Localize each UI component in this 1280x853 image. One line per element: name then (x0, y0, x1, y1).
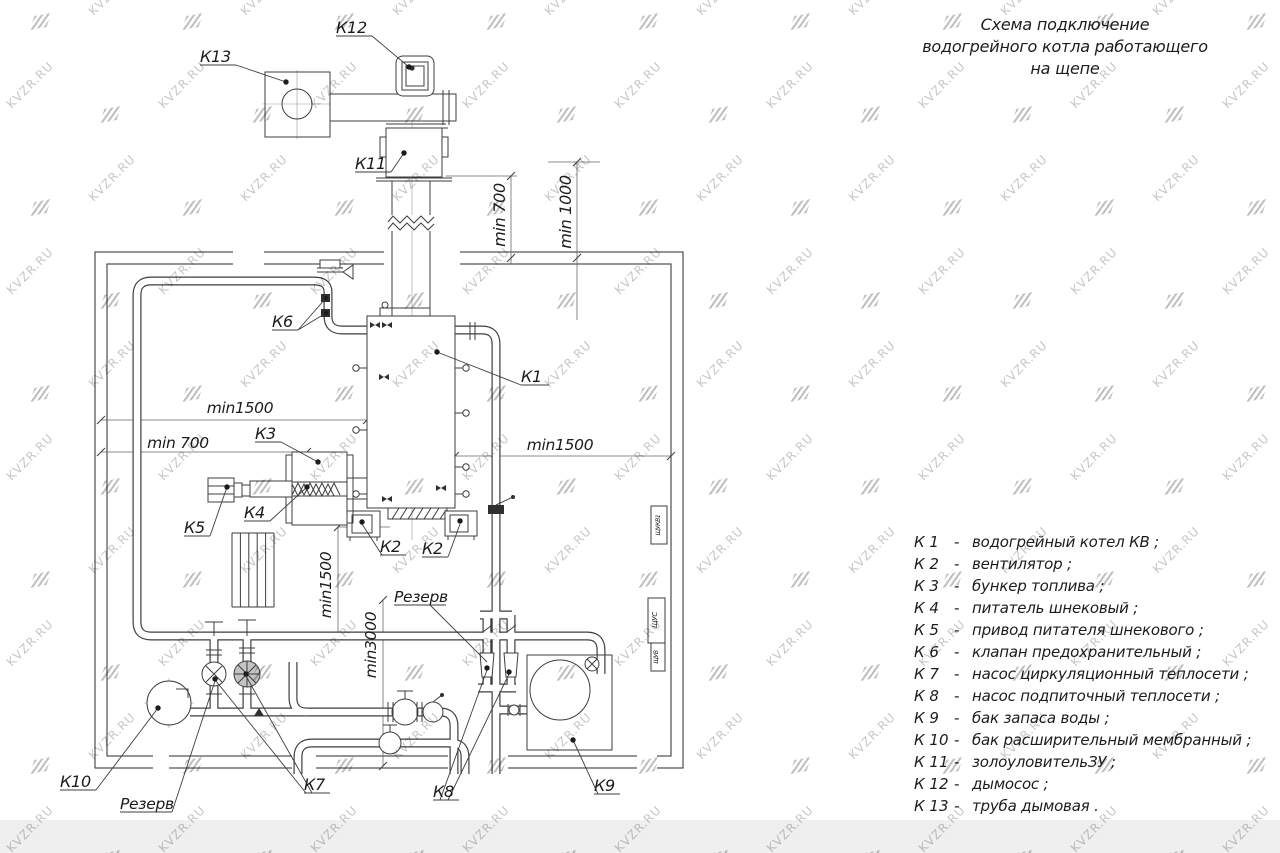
label-k1: К1 (521, 367, 542, 386)
legend-text: насос подпиточный теплосети ; (972, 687, 1220, 705)
ladder (232, 533, 274, 607)
dim-min700-top: min 700 (490, 183, 509, 247)
legend-text: бак запаса воды ; (972, 709, 1109, 727)
dim-min1000-top: min 1000 (556, 175, 575, 249)
legend-dash: - (954, 643, 972, 661)
legend-text: питатель шнековый ; (972, 599, 1138, 617)
legend-dash: - (954, 621, 972, 639)
label-k2-right: К2 (422, 539, 443, 558)
legend-text: золоуловительЗУ ; (972, 753, 1116, 771)
dim-min1500-right: min1500 (527, 436, 594, 454)
legend-key: К 7 (914, 665, 954, 683)
cabinet-label-schuv: ЩУВ (653, 650, 660, 664)
legend-item: К 11-золоуловительЗУ ; (914, 751, 1251, 773)
ash-catcher-k11 (376, 128, 452, 316)
feeder-drive-k5 (208, 478, 250, 502)
legend-item: К 9-бак запаса воды ; (914, 707, 1251, 729)
label-k13: К13 (200, 47, 231, 66)
legend-dash: - (954, 577, 972, 595)
label-k6: К6 (272, 312, 293, 331)
legend-dash: - (954, 687, 972, 705)
label-k10: К10 (60, 772, 91, 791)
legend-text: водогрейный котел КВ ; (972, 533, 1159, 551)
legend-text: вентилятор ; (972, 555, 1072, 573)
cabinet-label-schukv1: ЩУКВ1 (655, 515, 662, 536)
safety-valve-k6 (317, 260, 353, 317)
legend-key: К 9 (914, 709, 954, 727)
title-line-1: Схема подключение (920, 14, 1210, 36)
title-line-2: водогрейного котла работающего (920, 36, 1210, 58)
expansion-tank-k10 (147, 681, 191, 725)
legend-key: К 5 (914, 621, 954, 639)
legend-dash: - (954, 753, 972, 771)
legend-key: К 6 (914, 643, 954, 661)
dim-min1500-vertical: min1500 (317, 551, 335, 618)
dim-min3000-vertical: min3000 (362, 611, 380, 678)
legend-item: К 5-привод питателя шнекового ; (914, 619, 1251, 641)
legend-item: К 7-насос циркуляционный теплосети ; (914, 663, 1251, 685)
legend-dash: - (954, 731, 972, 749)
legend-item: К 4-питатель шнековый ; (914, 597, 1251, 619)
page: К13К12К11К1К6К3К4К5К2К2К10РезервК7К8Резе… (0, 0, 1280, 853)
legend-dash: - (954, 797, 972, 815)
legend-dash: - (954, 775, 972, 793)
legend-key: К 1 (914, 533, 954, 551)
gate-valve-2 (423, 693, 444, 722)
title-line-3: на щепе (920, 58, 1210, 80)
legend-dash: - (954, 665, 972, 683)
label-k9: К9 (594, 776, 615, 795)
chimney-k13 (265, 72, 330, 137)
flue-duct (330, 90, 456, 128)
label-k2-left: К2 (380, 537, 401, 556)
legend-item: К 1-водогрейный котел КВ ; (914, 531, 1251, 553)
legend: К 1-водогрейный котел КВ ;К 2-вентилятор… (914, 531, 1251, 817)
label-k5: К5 (184, 518, 205, 537)
smoke-exhauster-k12 (396, 56, 434, 96)
legend-text: труба дымовая . (972, 797, 1099, 815)
legend-item: К 10-бак расширительный мембранный ; (914, 729, 1251, 751)
legend-key: К 8 (914, 687, 954, 705)
drawing-title: Схема подключение водогрейного котла раб… (920, 14, 1210, 80)
fan-k2-right (445, 511, 477, 540)
legend-key: К 4 (914, 599, 954, 617)
legend-text: привод питателя шнекового ; (972, 621, 1204, 639)
legend-item: К 8-насос подпиточный теплосети ; (914, 685, 1251, 707)
legend-dash: - (954, 555, 972, 573)
label-k8: К8 (433, 782, 454, 801)
legend-key: К 3 (914, 577, 954, 595)
legend-item: К 3-бункер топлива ; (914, 575, 1251, 597)
legend-key: К 13 (914, 797, 954, 815)
label-reserve-left: Резерв (120, 795, 174, 813)
dim-min1500-left: min1500 (207, 399, 274, 417)
boiler-k1 (353, 302, 475, 519)
legend-dash: - (954, 709, 972, 727)
label-reserve-right: Резерв (394, 588, 448, 606)
legend-item: К 2-вентилятор ; (914, 553, 1251, 575)
legend-text: бак расширительный мембранный ; (972, 731, 1251, 749)
legend-text: насос циркуляционный теплосети ; (972, 665, 1249, 683)
legend-key: К 11 (914, 753, 954, 771)
label-k4: К4 (244, 503, 265, 522)
legend-text: бункер топлива ; (972, 577, 1104, 595)
label-k7: К7 (304, 775, 326, 794)
label-k3: К3 (255, 424, 276, 443)
legend-key: К 10 (914, 731, 954, 749)
legend-key: К 12 (914, 775, 954, 793)
legend-dash: - (954, 599, 972, 617)
cabinet-label-schus: ЩУС (651, 612, 659, 628)
label-k12: К12 (336, 18, 367, 37)
gate-valve-1 (388, 691, 422, 725)
legend-dash: - (954, 533, 972, 551)
legend-item: К 6-клапан предохранительный ; (914, 641, 1251, 663)
legend-item: К 12-дымосос ; (914, 773, 1251, 795)
legend-key: К 2 (914, 555, 954, 573)
gate-valve-3 (379, 725, 401, 754)
legend-text: дымосос ; (972, 775, 1048, 793)
legend-text: клапан предохранительный ; (972, 643, 1201, 661)
legend-item: К 13-труба дымовая . (914, 795, 1251, 817)
dim-min700-left: min 700 (147, 434, 209, 452)
label-k11: К11 (355, 154, 386, 173)
